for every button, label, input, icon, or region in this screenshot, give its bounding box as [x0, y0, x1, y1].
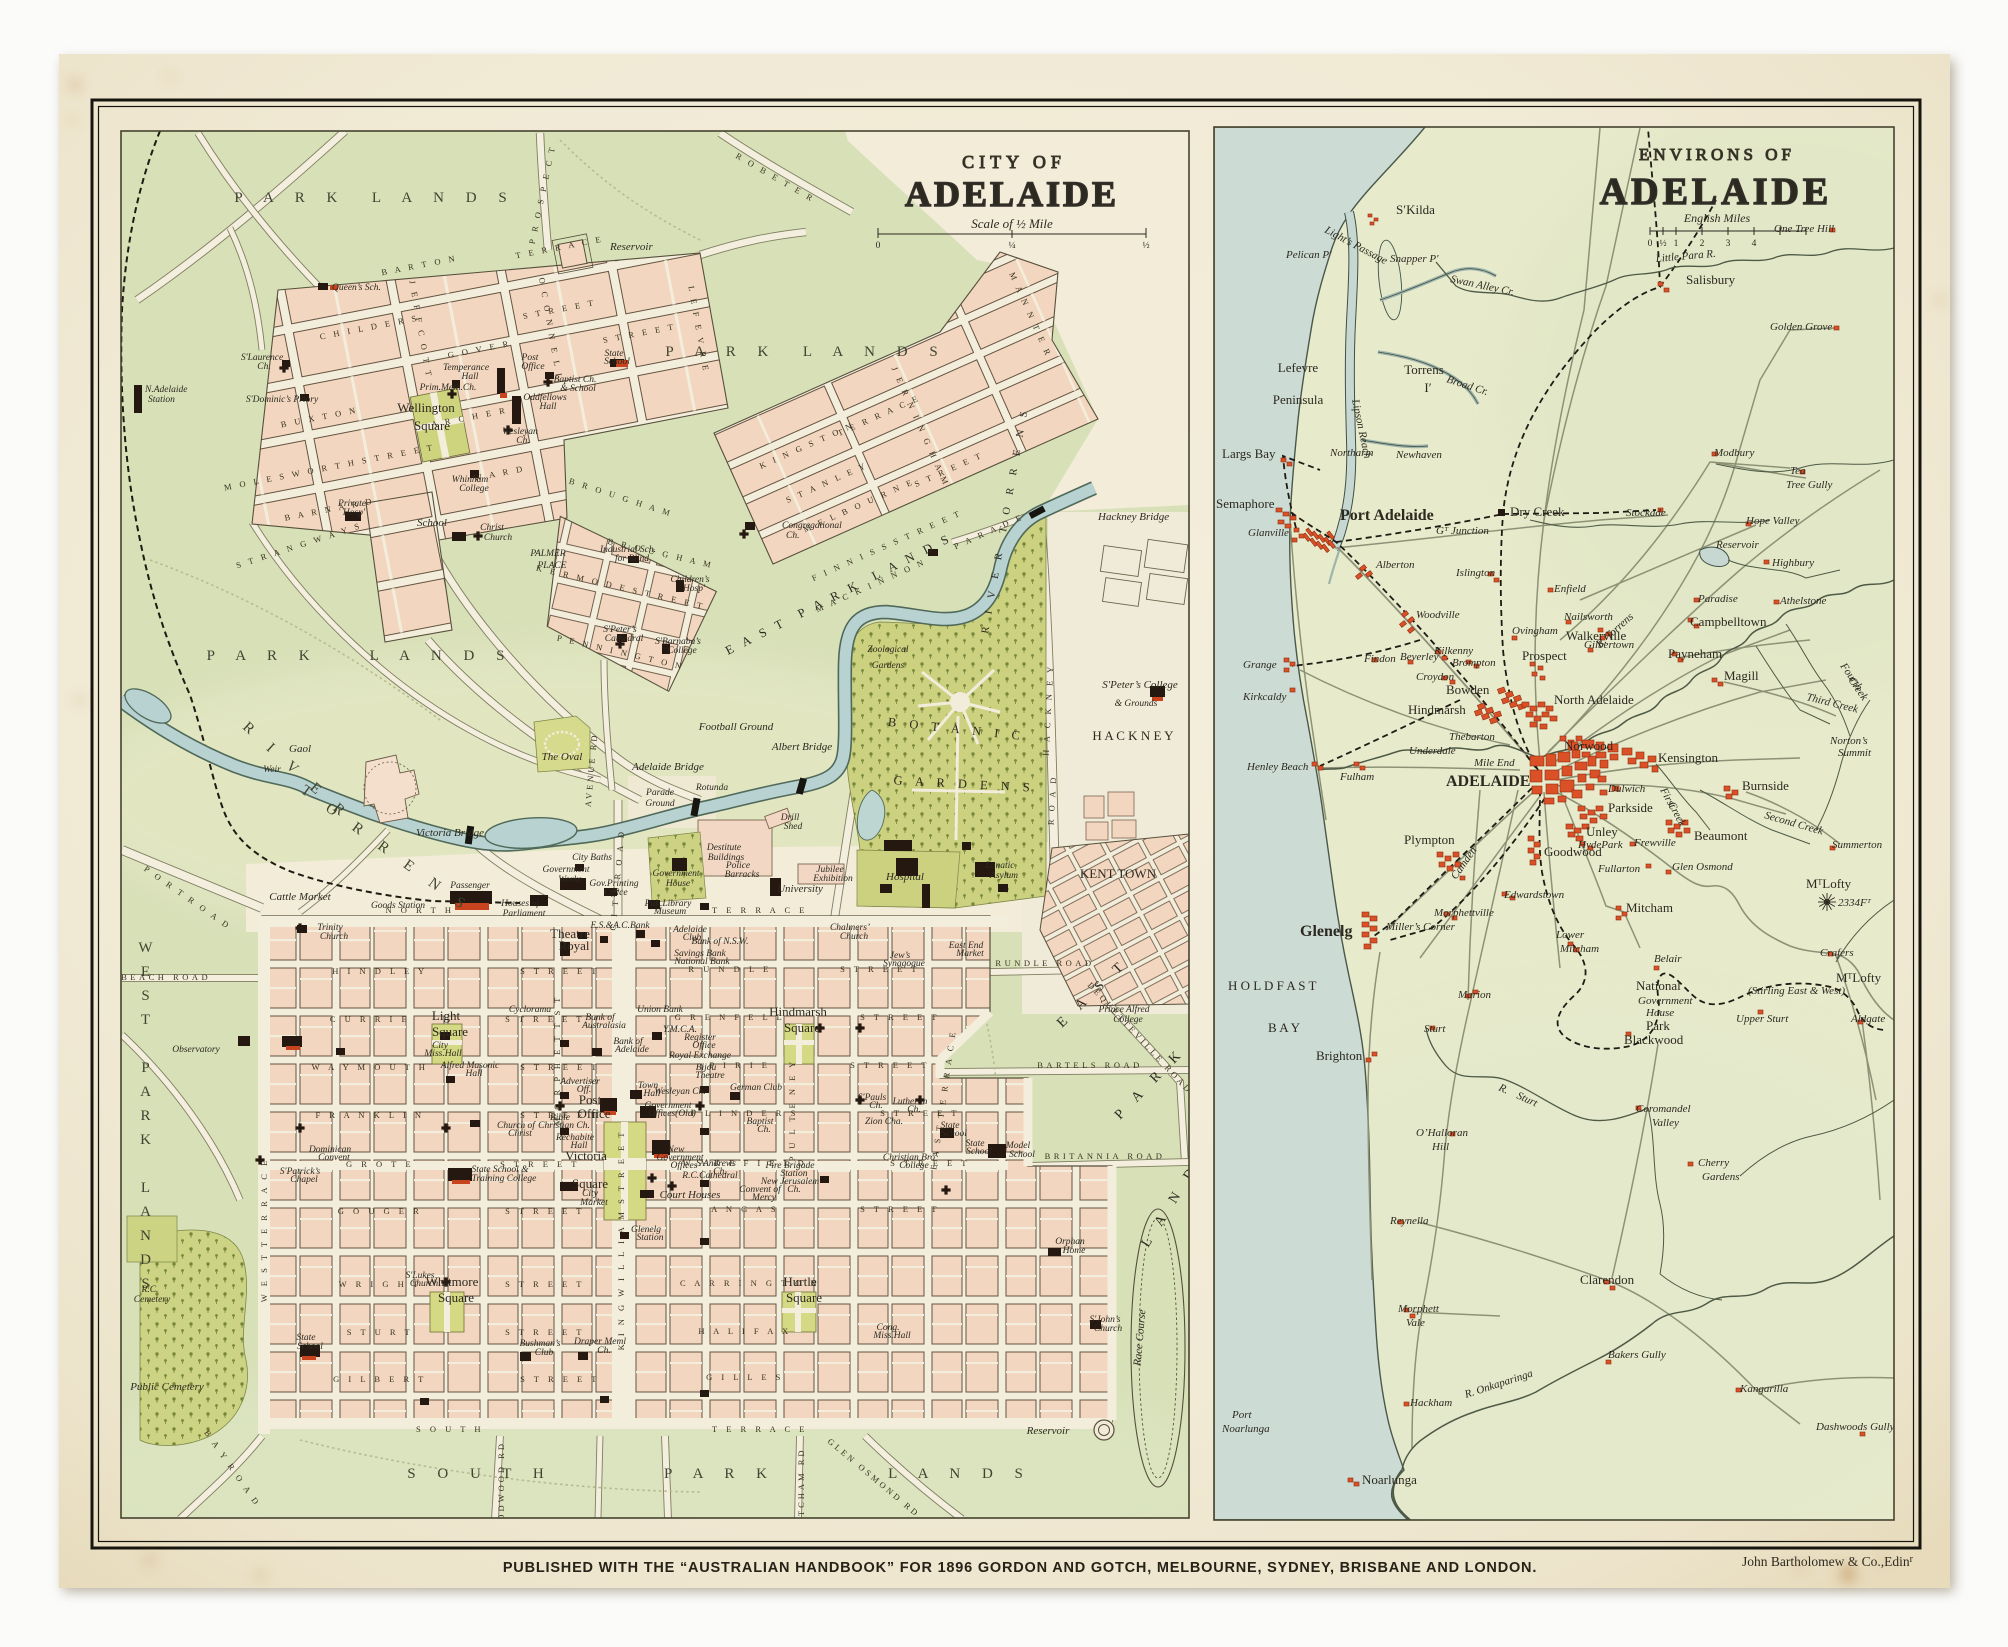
svg-text:PUBLISHED WITH THE “AUSTRALIAN: PUBLISHED WITH THE “AUSTRALIAN HANDBOOK”…	[503, 1560, 1537, 1576]
svg-text:Government: Government	[1638, 995, 1693, 1007]
svg-text:Morphett: Morphett	[1397, 1303, 1440, 1315]
svg-text:Burnside: Burnside	[1742, 778, 1789, 793]
svg-text:W A Y M O U T H: W A Y M O U T H	[312, 1062, 429, 1072]
svg-text:H A L I F A X: H A L I F A X	[698, 1326, 791, 1336]
svg-text:W: W	[138, 940, 161, 956]
svg-text:BARTELS ROAD: BARTELS ROAD	[1037, 1060, 1142, 1070]
svg-text:0: 0	[876, 241, 881, 251]
svg-text:D: D	[140, 1252, 160, 1268]
svg-text:2: 2	[1700, 239, 1705, 249]
svg-text:University: University	[777, 883, 823, 895]
svg-text:Lefevre: Lefevre	[1278, 360, 1319, 375]
svg-text:Kilkenny: Kilkenny	[1433, 645, 1473, 657]
svg-text:S′Dominic’s Priory: S′Dominic’s Priory	[246, 395, 319, 405]
svg-text:Public Cemetery: Public Cemetery	[129, 1381, 204, 1393]
svg-text:Nailsworth: Nailsworth	[1563, 611, 1613, 623]
svg-text:W R I G H T: W R I G H T	[339, 1279, 422, 1289]
svg-text:ENVIRONS OF: ENVIRONS OF	[1639, 145, 1795, 164]
svg-text:F L I N D E R S: F L I N D E R S	[691, 1108, 799, 1118]
svg-text:C U R R I E: C U R R I E	[330, 1014, 410, 1024]
svg-text:School: School	[1009, 1150, 1035, 1160]
svg-text:Clarendon: Clarendon	[1580, 1272, 1635, 1287]
svg-text:Thebarton: Thebarton	[1449, 731, 1495, 743]
svg-text:P A R K L A N D S: P A R K L A N D S	[207, 648, 514, 664]
svg-text:S T R E E T: S T R E E T	[880, 1108, 960, 1118]
svg-text:Tea: Tea	[1790, 465, 1806, 477]
svg-text:Australasia: Australasia	[581, 1021, 626, 1031]
svg-text:Beverley: Beverley	[1400, 651, 1439, 663]
svg-text:National: National	[1636, 978, 1681, 993]
svg-text:O’Halloran: O’Halloran	[1416, 1127, 1468, 1139]
svg-text:Goodwood: Goodwood	[1544, 844, 1602, 859]
svg-text:Morphettville: Morphettville	[1433, 907, 1494, 919]
svg-text:G I L B E R T: G I L B E R T	[333, 1374, 427, 1384]
svg-text:Newhaven: Newhaven	[1395, 449, 1442, 461]
svg-text:BRITANNIA ROAD: BRITANNIA ROAD	[1045, 1151, 1166, 1161]
svg-text:Zoological: Zoological	[867, 645, 909, 655]
svg-text:Glenelg: Glenelg	[1300, 923, 1352, 940]
svg-text:Office: Office	[521, 361, 544, 372]
svg-text:Reservoir: Reservoir	[1715, 539, 1759, 551]
svg-text:L: L	[141, 1180, 159, 1196]
svg-text:Enfield: Enfield	[1553, 583, 1586, 595]
svg-text:Hall: Hall	[465, 1069, 483, 1079]
svg-text:Mitcham: Mitcham	[1626, 900, 1673, 915]
svg-text:KENT TOWN: KENT TOWN	[1080, 866, 1157, 881]
svg-text:MᵀLofty: MᵀLofty	[1836, 970, 1882, 985]
svg-text:Noarlunga: Noarlunga	[1362, 1472, 1417, 1487]
svg-text:G O U G E R: G O U G E R	[338, 1206, 423, 1216]
svg-text:Brompton: Brompton	[1452, 657, 1496, 669]
svg-text:Fulham: Fulham	[1339, 771, 1374, 783]
svg-text:One Tree Hill: One Tree Hill	[1774, 223, 1834, 235]
svg-text:Station: Station	[148, 395, 175, 405]
svg-text:Rotunda: Rotunda	[695, 783, 728, 793]
svg-text:Marion: Marion	[1457, 989, 1492, 1001]
svg-text:A: A	[140, 1084, 160, 1100]
svg-text:School: School	[966, 1147, 992, 1157]
svg-text:Underdale: Underdale	[1409, 745, 1456, 757]
svg-text:R: R	[140, 1108, 159, 1124]
svg-text:German Club: German Club	[730, 1083, 782, 1093]
svg-text:Northarm: Northarm	[1329, 447, 1373, 459]
svg-text:Church: Church	[484, 533, 512, 543]
svg-text:Sturt: Sturt	[1424, 1023, 1446, 1035]
svg-text:Square: Square	[784, 1020, 820, 1035]
svg-text:Peninsula: Peninsula	[1273, 392, 1324, 407]
svg-text:N: N	[140, 1228, 160, 1244]
svg-text:Church: Church	[320, 932, 348, 942]
svg-text:Henley Beach: Henley Beach	[1246, 761, 1309, 773]
svg-text:S T R E E T: S T R E E T	[860, 1012, 940, 1022]
svg-text:Ch.: Ch.	[597, 1346, 610, 1356]
svg-text:Park: Park	[1646, 1018, 1670, 1033]
svg-text:Victoria Bridge: Victoria Bridge	[416, 827, 484, 839]
svg-text:Dulwich: Dulwich	[1607, 783, 1646, 795]
svg-text:P I R I E: P I R I E	[710, 1060, 771, 1070]
svg-text:Office: Office	[692, 1040, 715, 1051]
svg-text:Football Ground: Football Ground	[698, 721, 774, 733]
svg-text:H O L D F A S T: H O L D F A S T	[1228, 978, 1317, 993]
svg-text:Hosp′: Hosp′	[682, 584, 706, 594]
svg-text:2334Fᵀ: 2334Fᵀ	[1838, 897, 1872, 909]
svg-text:Alberton: Alberton	[1375, 559, 1415, 571]
svg-text:Shed: Shed	[784, 822, 803, 832]
svg-text:P U L T E N E Y: P U L T E N E Y	[787, 1059, 797, 1162]
svg-text:City Baths: City Baths	[572, 853, 612, 863]
svg-text:Bowden: Bowden	[1446, 682, 1490, 697]
svg-text:Prospect: Prospect	[1522, 648, 1567, 663]
svg-text:MᵀLofty: MᵀLofty	[1806, 876, 1852, 891]
svg-text:Cathedral: Cathedral	[605, 634, 644, 644]
svg-text:(Stirling East & West): (Stirling East & West)	[1748, 985, 1845, 997]
svg-text:Belair: Belair	[1654, 953, 1682, 965]
svg-text:Prim.Meth.Ch.: Prim.Meth.Ch.	[419, 383, 477, 393]
svg-text:Upper Sturt: Upper Sturt	[1736, 1013, 1789, 1025]
svg-text:Gardens: Gardens	[872, 661, 905, 671]
svg-text:Noarlunga: Noarlunga	[1221, 1423, 1270, 1435]
svg-text:Bakers Gully: Bakers Gully	[1608, 1349, 1666, 1361]
svg-text:Reservoir: Reservoir	[609, 241, 653, 253]
svg-text:L A N D S: L A N D S	[888, 1466, 1032, 1482]
svg-text:Gardens: Gardens	[1702, 1171, 1739, 1183]
svg-text:CITY OF: CITY OF	[962, 152, 1066, 172]
svg-text:Reservoir: Reservoir	[1026, 1425, 1070, 1437]
svg-text:N O R T H: N O R T H	[386, 905, 455, 915]
svg-text:P A R K: P A R K	[664, 1466, 776, 1482]
svg-text:H I N D L E Y: H I N D L E Y	[332, 966, 427, 976]
svg-text:Port Adelaide: Port Adelaide	[1340, 507, 1434, 524]
svg-text:Ovingham: Ovingham	[1512, 625, 1558, 637]
svg-text:A: A	[140, 1204, 160, 1220]
svg-text:Wellington: Wellington	[397, 400, 455, 415]
svg-text:Miller’s Corner: Miller’s Corner	[1385, 921, 1456, 933]
svg-text:Bank of N.S.W.: Bank of N.S.W.	[692, 936, 749, 947]
svg-text:Observatory: Observatory	[172, 1045, 220, 1055]
svg-text:Fullarton: Fullarton	[1597, 863, 1641, 875]
svg-text:Houses of: Houses of	[500, 898, 540, 909]
svg-text:S T R E E T: S T R E E T	[505, 1327, 585, 1337]
svg-text:Training College: Training College	[472, 1174, 537, 1184]
svg-text:Woodville: Woodville	[1416, 609, 1460, 621]
svg-text:Wesleyan Ch.: Wesleyan Ch.	[654, 1087, 705, 1097]
svg-text:Scale of ½ Mile: Scale of ½ Mile	[971, 216, 1053, 231]
svg-text:Hackham: Hackham	[1409, 1397, 1452, 1409]
svg-text:Hill: Hill	[1431, 1141, 1449, 1153]
svg-text:S T R E E T: S T R E E T	[500, 1159, 580, 1169]
svg-text:Market: Market	[955, 949, 984, 959]
svg-text:S T R E E T: S T R E E T	[520, 1374, 600, 1384]
svg-text:B A Y: B A Y	[1268, 1020, 1301, 1035]
svg-text:Hope Valley: Hope Valley	[1745, 515, 1800, 527]
svg-text:Aldgate: Aldgate	[1850, 1013, 1885, 1025]
svg-text:Glen Osmond: Glen Osmond	[1672, 861, 1733, 873]
svg-text:C A R R I N G T O N: C A R R I N G T O N	[680, 1278, 820, 1288]
svg-text:Ch.: Ch.	[757, 1125, 770, 1135]
svg-text:Square: Square	[786, 1290, 822, 1305]
svg-text:0: 0	[1648, 239, 1653, 249]
svg-text:Reynella: Reynella	[1389, 1215, 1429, 1227]
svg-text:Ch.: Ch.	[713, 1167, 726, 1177]
svg-text:John Bartholomew & Co.,Edinr: John Bartholomew & Co.,Edinr	[1742, 1554, 1914, 1569]
svg-text:S T R E E T: S T R E E T	[520, 966, 600, 976]
svg-text:R.C.Cathedral: R.C.Cathedral	[681, 1171, 738, 1181]
svg-text:S T R E E T: S T R E E T	[850, 1060, 930, 1070]
svg-text:Golden Grove: Golden Grove	[1770, 321, 1832, 333]
svg-text:Glanville: Glanville	[1248, 527, 1289, 539]
svg-text:Athelstone: Athelstone	[1779, 595, 1827, 607]
svg-text:Port: Port	[1231, 1409, 1253, 1421]
svg-text:PALMER: PALMER	[529, 549, 565, 559]
svg-text:Highbury: Highbury	[1771, 557, 1814, 569]
svg-text:Cemetery: Cemetery	[134, 1295, 171, 1305]
svg-text:Parkside: Parkside	[1608, 800, 1653, 815]
svg-text:Weir: Weir	[263, 765, 281, 775]
svg-text:Valley: Valley	[1652, 1117, 1679, 1129]
svg-text:½: ½	[1142, 240, 1149, 251]
svg-text:Theatre: Theatre	[695, 1071, 724, 1081]
svg-text:S T U R T: S T U R T	[347, 1327, 413, 1337]
svg-text:Coromandel: Coromandel	[1636, 1103, 1691, 1115]
svg-text:Asylum: Asylum	[989, 871, 1018, 881]
svg-text:Beaumont: Beaumont	[1694, 828, 1748, 843]
svg-text:Royal: Royal	[558, 938, 589, 953]
svg-text:Dry Creek: Dry Creek	[1510, 504, 1565, 519]
svg-text:for Blind: for Blind	[615, 553, 649, 564]
svg-text:Norton’s: Norton’s	[1829, 735, 1868, 747]
svg-text:Destitute: Destitute	[706, 843, 741, 853]
svg-text:Vale: Vale	[1406, 1317, 1425, 1329]
svg-text:Church: Church	[840, 932, 868, 942]
svg-text:Crafers: Crafers	[1820, 947, 1854, 959]
svg-text:Church: Church	[1094, 1324, 1122, 1334]
svg-text:Islington: Islington	[1455, 567, 1496, 579]
svg-text:Kangarilla: Kangarilla	[1739, 1383, 1789, 1395]
svg-text:Paradise: Paradise	[1697, 593, 1738, 605]
svg-text:Home: Home	[1062, 1246, 1086, 1256]
svg-text:Parade: Parade	[645, 788, 674, 798]
svg-text:Mercy: Mercy	[751, 1193, 777, 1203]
svg-text:1: 1	[1674, 239, 1679, 249]
svg-text:Snapper P′: Snapper P′	[1390, 253, 1439, 265]
svg-text:Light: Light	[432, 1008, 461, 1023]
svg-text:English Miles: English Miles	[1683, 211, 1751, 225]
svg-text:College: College	[459, 484, 489, 494]
svg-text:Mitcham: Mitcham	[1559, 943, 1599, 955]
svg-text:S′Peter’s College: S′Peter’s College	[1102, 679, 1178, 691]
svg-text:Campbelltown: Campbelltown	[1690, 614, 1767, 629]
svg-text:G R O T E: G R O T E	[346, 1159, 414, 1169]
svg-text:E.S.&A.C.Bank: E.S.&A.C.Bank	[589, 921, 650, 931]
svg-text:School: School	[604, 357, 630, 367]
svg-text:Ch.: Ch.	[516, 436, 529, 446]
svg-text:Unley: Unley	[1586, 824, 1618, 839]
svg-text:Albert Bridge: Albert Bridge	[771, 741, 832, 753]
svg-text:North Adelaide: North Adelaide	[1554, 692, 1634, 707]
svg-text:Queen’s Sch.: Queen’s Sch.	[332, 283, 381, 293]
svg-text:T: T	[141, 1012, 159, 1028]
svg-text:Semaphore: Semaphore	[1216, 496, 1275, 511]
svg-text:ADELAIDE: ADELAIDE	[905, 174, 1119, 214]
svg-text:House: House	[665, 879, 690, 889]
svg-text:Magill: Magill	[1724, 668, 1759, 683]
svg-text:Station: Station	[637, 1233, 664, 1243]
svg-text:3: 3	[1726, 239, 1731, 249]
svg-text:Government: Government	[543, 865, 590, 875]
svg-text:Findon: Findon	[1363, 653, 1396, 665]
svg-text:I′: I′	[1424, 380, 1431, 395]
svg-text:R U N D L E: R U N D L E	[688, 964, 771, 974]
svg-text:School: School	[941, 1129, 967, 1139]
svg-text:S O U T H: S O U T H	[416, 1424, 484, 1434]
svg-text:P A R K L A N D S: P A R K L A N D S	[234, 190, 515, 206]
svg-text:Lower: Lower	[1555, 929, 1585, 941]
svg-text:Zion Cha.: Zion Cha.	[865, 1117, 903, 1127]
svg-text:S T R E E T: S T R E E T	[505, 1206, 585, 1216]
svg-text:School: School	[417, 517, 447, 529]
svg-text:Pelican P′: Pelican P′	[1285, 249, 1332, 261]
svg-text:Hall: Hall	[461, 372, 479, 382]
svg-text:Passenger: Passenger	[449, 881, 490, 891]
svg-text:Ch.: Ch.	[257, 362, 270, 372]
svg-text:Frewville: Frewville	[1633, 837, 1676, 849]
svg-text:Brighton: Brighton	[1316, 1048, 1363, 1063]
svg-text:F R A N K L I N: F R A N K L I N	[315, 1110, 424, 1120]
svg-text:Miss.Hall: Miss.Hall	[872, 1331, 911, 1341]
svg-text:S′Kilda: S′Kilda	[1396, 202, 1435, 217]
svg-text:Hospital: Hospital	[885, 871, 924, 883]
svg-text:Parliament: Parliament	[502, 909, 546, 919]
svg-text:N.Adelaide: N.Adelaide	[144, 385, 187, 395]
svg-text:P: P	[141, 1060, 158, 1076]
svg-text:Largs Bay: Largs Bay	[1222, 446, 1276, 461]
svg-text:Blackwood: Blackwood	[1624, 1032, 1684, 1047]
svg-text:T E R R A C E: T E R R A C E	[712, 1424, 808, 1434]
svg-text:Summit: Summit	[1838, 747, 1872, 759]
svg-text:Grange: Grange	[1243, 659, 1277, 671]
svg-text:Cherry: Cherry	[1698, 1157, 1729, 1169]
svg-text:Square: Square	[432, 1024, 468, 1039]
svg-text:Mile End: Mile End	[1473, 757, 1515, 769]
svg-text:Stockade: Stockade	[1626, 507, 1666, 519]
svg-text:Hall: Hall	[539, 402, 557, 412]
svg-text:Plympton: Plympton	[1404, 832, 1455, 847]
svg-text:Christian Ch.: Christian Ch.	[538, 1121, 590, 1131]
svg-text:Christ: Christ	[508, 1129, 532, 1139]
svg-text:The Oval: The Oval	[542, 751, 583, 763]
svg-text:Cattle Market: Cattle Market	[269, 891, 331, 903]
svg-text:G I L L E S: G I L L E S	[706, 1372, 784, 1382]
svg-text:Ch.: Ch.	[787, 1185, 800, 1195]
svg-text:Hindmarsh: Hindmarsh	[1408, 702, 1466, 717]
svg-text:Gᵀ Junction: Gᵀ Junction	[1436, 525, 1489, 537]
svg-text:Payneham: Payneham	[1668, 646, 1722, 661]
svg-text:Club: Club	[535, 1348, 554, 1358]
svg-text:Summerton: Summerton	[1832, 839, 1883, 851]
svg-text:Government: Government	[653, 869, 700, 879]
svg-text:G R E N F E L L: G R E N F E L L	[675, 1012, 786, 1022]
svg-text:Edwardstown: Edwardstown	[1503, 889, 1565, 901]
svg-text:K I N G W I L L I A M S T: K I N G W I L L I A M S T R E E T	[616, 1130, 626, 1351]
svg-text:Works: Works	[558, 875, 582, 885]
svg-text:4: 4	[1752, 239, 1757, 249]
svg-text:Adelaide: Adelaide	[614, 1045, 649, 1055]
svg-text:Modbury: Modbury	[1713, 447, 1754, 459]
svg-text:K: K	[140, 1132, 160, 1148]
svg-text:RUNDLE ROAD: RUNDLE ROAD	[995, 958, 1094, 968]
svg-text:¼: ¼	[1008, 241, 1015, 251]
svg-text:½: ½	[1659, 238, 1666, 249]
svg-text:& Grounds: & Grounds	[1115, 699, 1158, 709]
svg-text:T E R R A C E: T E R R A C E	[712, 905, 808, 915]
svg-text:Salisbury: Salisbury	[1686, 272, 1736, 287]
svg-text:& School: & School	[560, 384, 596, 394]
svg-text:S O U T H: S O U T H	[407, 1466, 552, 1482]
svg-text:ADELAIDE: ADELAIDE	[1600, 171, 1833, 213]
svg-text:College: College	[667, 646, 697, 656]
svg-text:R.C.: R.C.	[141, 1285, 159, 1295]
svg-text:Adelaide Bridge: Adelaide Bridge	[631, 761, 704, 773]
svg-text:S T R E E T: S T R E E T	[840, 964, 920, 974]
svg-text:Ground: Ground	[645, 799, 674, 809]
svg-text:A N G A S: A N G A S	[711, 1204, 779, 1214]
svg-text:Gaol: Gaol	[289, 743, 311, 755]
svg-text:Norwood: Norwood	[1564, 738, 1614, 753]
svg-text:Chapel: Chapel	[290, 1175, 318, 1185]
svg-text:Museum: Museum	[653, 907, 686, 917]
svg-text:S: S	[141, 988, 158, 1004]
svg-text:Barracks: Barracks	[725, 870, 760, 880]
svg-text:Dashwoods Gully: Dashwoods Gully	[1815, 1421, 1895, 1433]
svg-text:Ch.: Ch.	[786, 531, 799, 541]
svg-text:School: School	[297, 1342, 323, 1352]
svg-text:Kirkcaldy: Kirkcaldy	[1242, 691, 1286, 703]
svg-text:S T R E E T: S T R E E T	[505, 1279, 585, 1289]
svg-text:Hackney Bridge: Hackney Bridge	[1097, 511, 1169, 523]
svg-text:Torrens: Torrens	[1404, 362, 1444, 377]
svg-text:Offices(Old): Offices(Old)	[648, 1108, 696, 1119]
svg-text:Kensington: Kensington	[1658, 750, 1718, 765]
svg-text:M O R P H E T T S T: M O R P H E T T S T	[552, 995, 562, 1126]
svg-text:Christ: Christ	[480, 523, 504, 533]
svg-text:S T R E E T: S T R E E T	[505, 1014, 585, 1024]
svg-text:Post: Post	[579, 1092, 602, 1107]
svg-text:Tree Gully: Tree Gully	[1786, 479, 1832, 491]
svg-text:ADELAIDE: ADELAIDE	[1446, 773, 1530, 790]
svg-text:Miss.Hall: Miss.Hall	[423, 1049, 462, 1059]
svg-text:S T R E E T: S T R E E T	[860, 1204, 940, 1214]
svg-text:Square: Square	[438, 1290, 474, 1305]
svg-text:W E S T T E R R A C E: W E S T T E R R A C E	[259, 1158, 269, 1302]
svg-text:Lunatic: Lunatic	[984, 861, 1015, 871]
svg-text:H A C K N E Y: H A C K N E Y	[1092, 728, 1174, 743]
svg-text:Court Houses: Court Houses	[660, 1189, 721, 1201]
